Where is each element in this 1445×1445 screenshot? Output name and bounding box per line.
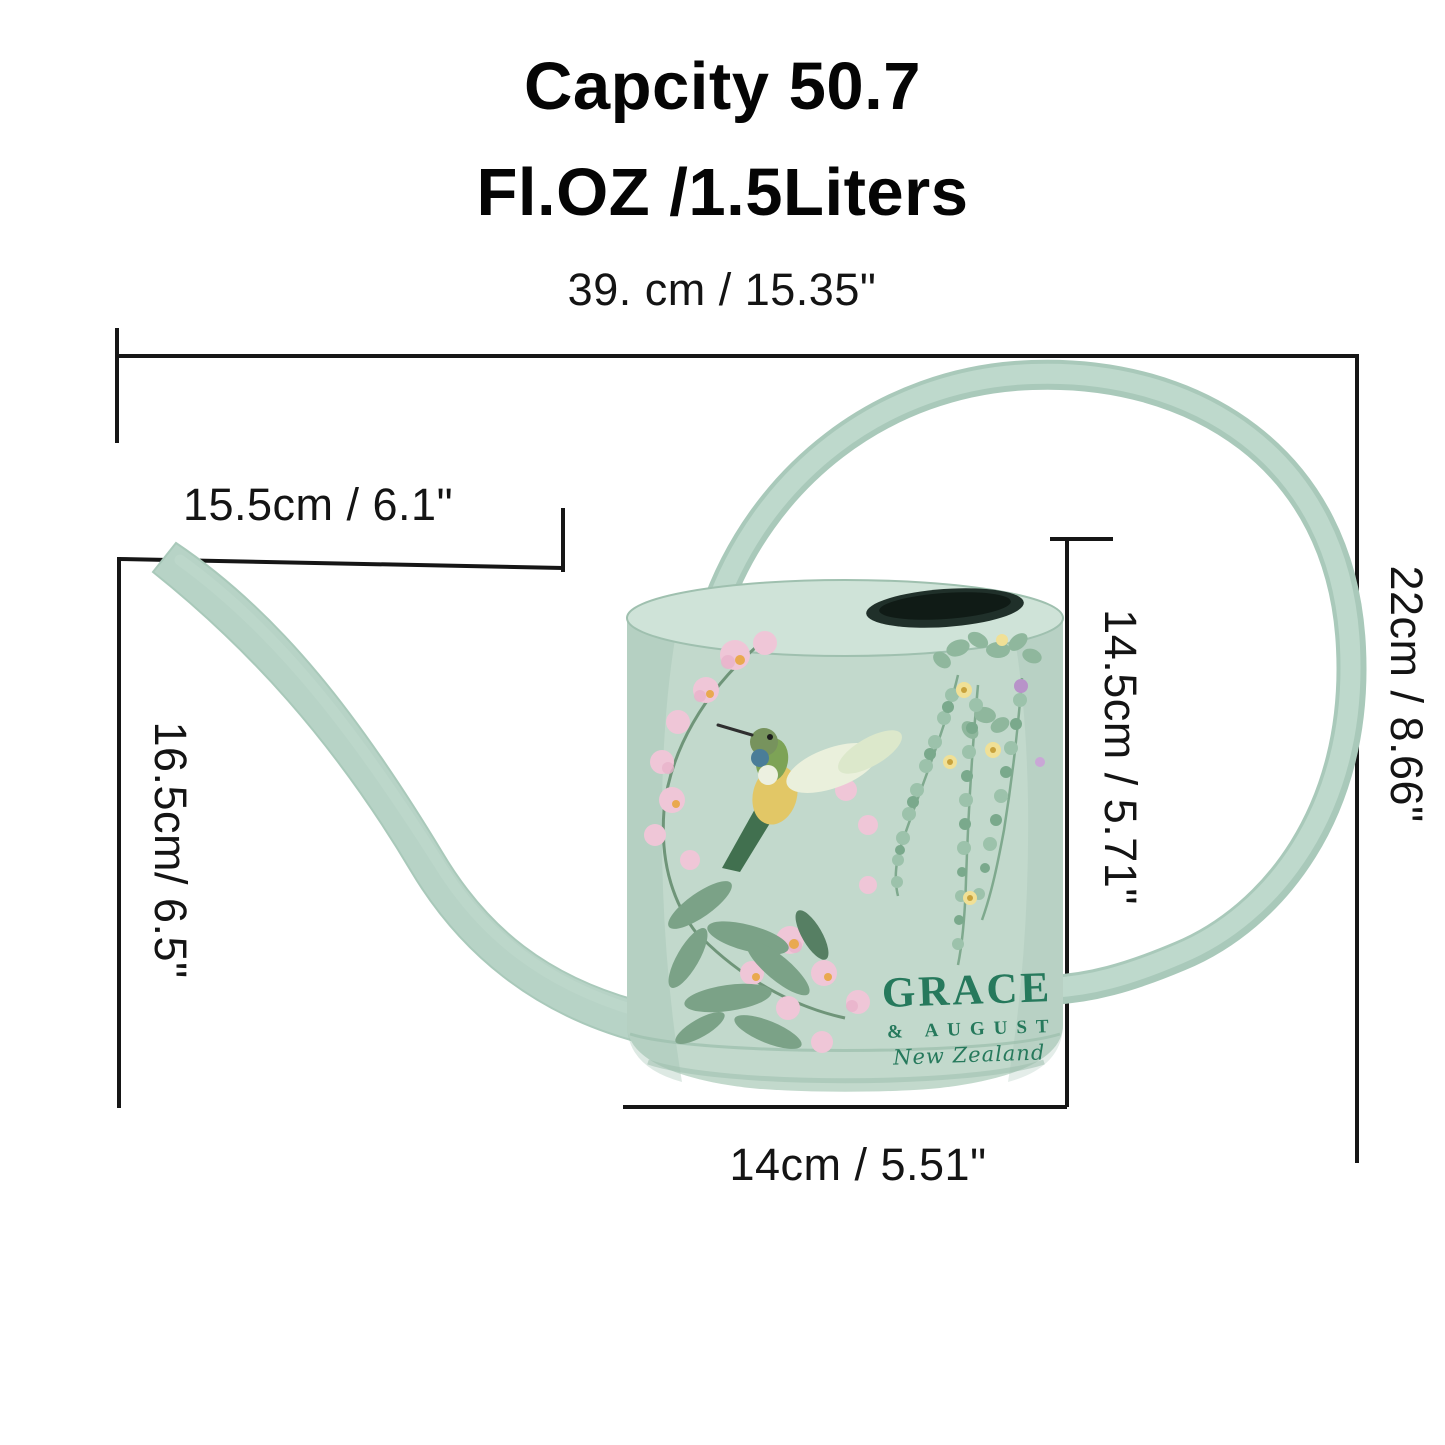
dim-label-base-width: 14cm / 5.51" xyxy=(729,1139,986,1191)
dim-label-spout-length: 15.5cm / 6.1" xyxy=(183,479,453,531)
product-title: Capcity 50.7 Fl.OZ /1.5Liters xyxy=(0,34,1445,246)
dim-label-spout-height: 16.5cm/ 6.5" xyxy=(144,721,196,978)
watering-can-spout xyxy=(153,543,646,1044)
dim-label-top-width: 39. cm / 15.35" xyxy=(568,264,877,316)
dim-label-overall-height: 22cm / 8.66" xyxy=(1380,565,1432,822)
dim-label-can-height: 14.5cm / 5.71" xyxy=(1094,609,1146,905)
brand-name-text: GRACE xyxy=(881,964,1053,1017)
title-line-1: Capcity 50.7 xyxy=(0,34,1445,140)
title-line-2: Fl.OZ /1.5Liters xyxy=(0,140,1445,246)
product-dimension-diagram: GRACE & AUGUST New Zealand Capcity 50.7 … xyxy=(0,0,1445,1445)
